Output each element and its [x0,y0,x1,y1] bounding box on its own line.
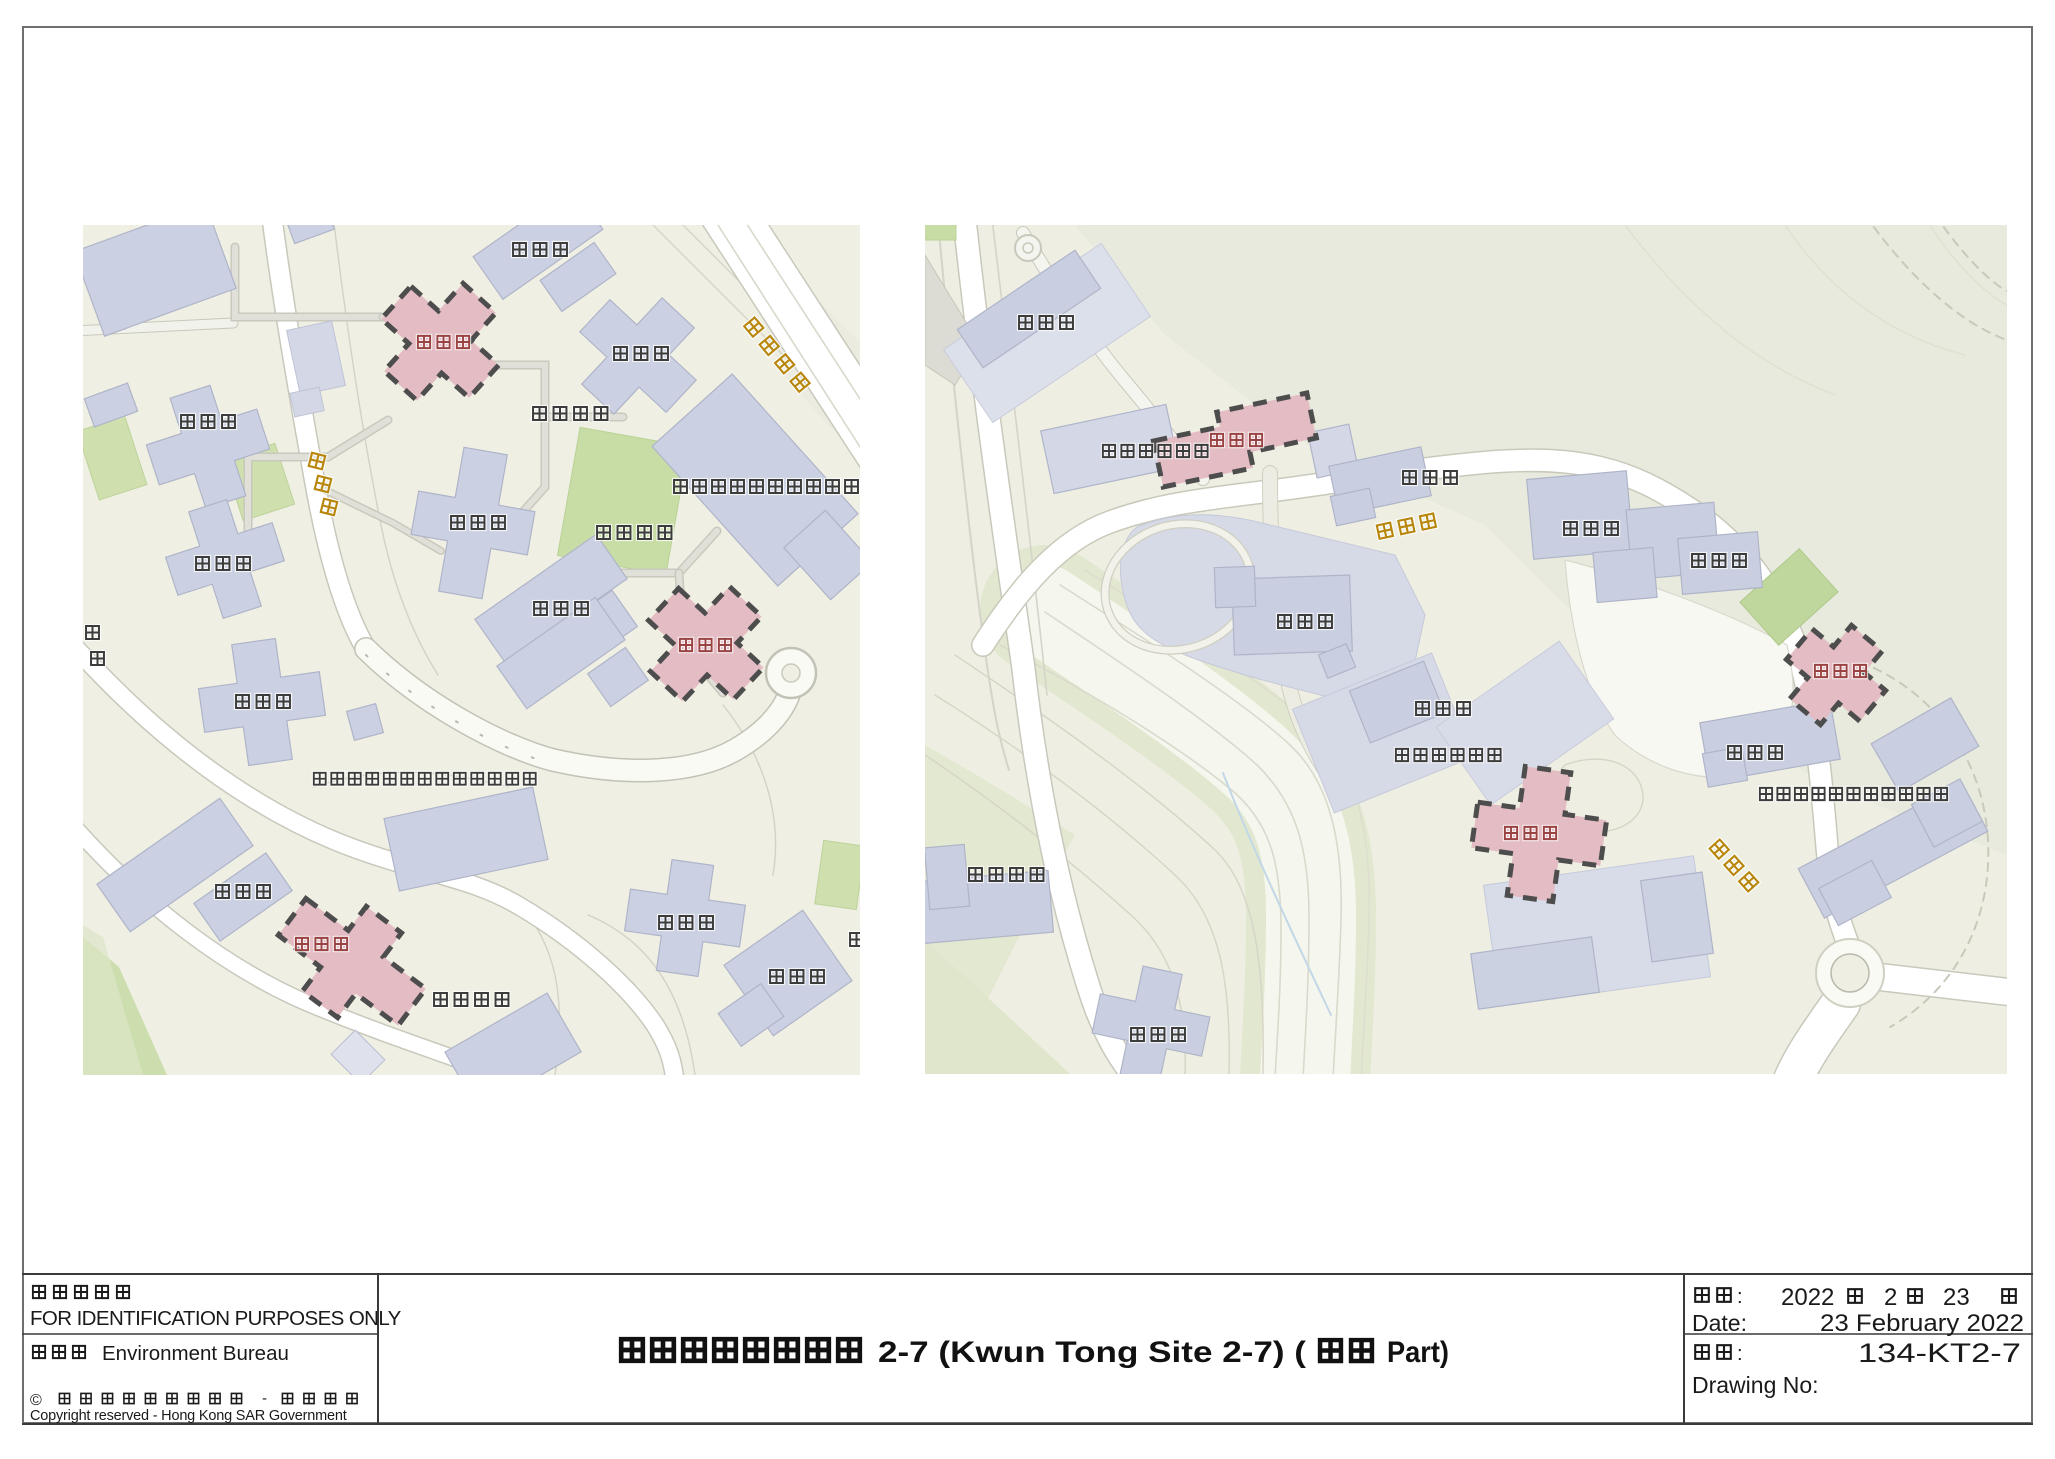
svg-text::: : [1737,1286,1743,1308]
svg-text:Copyright reserved - Hong Kong: Copyright reserved - Hong Kong SAR Gover… [30,1408,347,1424]
svg-text:2: 2 [1884,1284,1897,1311]
svg-text:FOR IDENTIFICATION PURPOSES ON: FOR IDENTIFICATION PURPOSES ONLY [30,1307,402,1330]
svg-text:23: 23 [1943,1284,1970,1311]
svg-text:Drawing No:: Drawing No: [1692,1372,1819,1398]
svg-text:2022: 2022 [1781,1284,1834,1311]
svg-text:Part): Part) [1387,1336,1449,1369]
svg-text:Environment Bureau: Environment Bureau [102,1342,289,1365]
svg-text:23 February 2022: 23 February 2022 [1820,1310,2024,1337]
svg-text:134-KT2-7: 134-KT2-7 [1858,1338,2021,1368]
svg-text:2-7 (Kwun Tong Site 2-7) (: 2-7 (Kwun Tong Site 2-7) ( [878,1336,1306,1369]
svg-text:Date:: Date: [1692,1310,1747,1336]
svg-text:©: © [30,1392,42,1409]
svg-text:-: - [262,1390,267,1407]
svg-text::: : [1737,1343,1743,1365]
